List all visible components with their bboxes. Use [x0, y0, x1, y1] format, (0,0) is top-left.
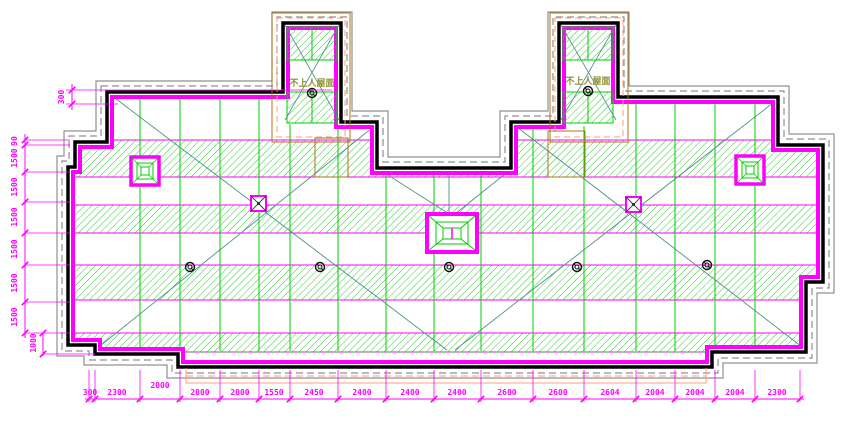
roof-plan-drawing: 不上人屋面 不上人屋面 300	[0, 0, 852, 423]
skylight	[427, 214, 477, 252]
dimension-extension-lines-bottom	[89, 370, 800, 402]
dim-label: 2400	[447, 388, 466, 397]
dim-label: 2000	[150, 381, 169, 390]
dim-label: 1500	[10, 239, 19, 258]
flashing-lines	[186, 368, 706, 383]
dim-label: 2604	[600, 388, 619, 397]
vent-box-icon	[251, 196, 266, 211]
dim-label: 90	[10, 136, 19, 146]
pyramid-vent-icon	[131, 157, 159, 185]
parapet-outlines	[68, 23, 823, 367]
dim-label: 2000	[190, 388, 209, 397]
dim-label: 2600	[497, 388, 516, 397]
dim-label: 1500	[10, 177, 19, 196]
dim-label: 2600	[548, 388, 567, 397]
dim-label: 300	[83, 388, 98, 397]
dim-label: 2004	[725, 388, 744, 397]
dim-label: 2000	[230, 388, 249, 397]
dim-label: 1500	[10, 307, 19, 326]
parapet-outline-black	[68, 23, 823, 367]
dim-label: 2004	[645, 388, 664, 397]
dim-label: 1000	[29, 333, 38, 352]
dim-label: 1500	[10, 148, 19, 167]
dimension-labels-left: 90 1500 1500 1500 1500 1500 1500 1000	[10, 136, 38, 353]
dim-label: 1550	[264, 388, 283, 397]
dimension-chain-bottom: 300 2300 2000 2000 2000 1550 2450 2400 2…	[83, 370, 804, 402]
dim-label: 2004	[685, 388, 704, 397]
dim-label: 1500	[10, 207, 19, 226]
dim-label: 2300	[107, 388, 126, 397]
dim-label: 2450	[304, 388, 323, 397]
dim-label: 300	[57, 90, 66, 105]
roof-note-right: 不上人屋面	[565, 75, 610, 87]
pyramid-vent-icon	[736, 156, 764, 184]
dim-label: 2400	[352, 388, 371, 397]
vent-box-icon	[626, 197, 641, 212]
roof-offset-outlines	[57, 12, 834, 378]
roof-plan-canvas: 不上人屋面 不上人屋面 300	[0, 0, 852, 423]
roof-note-left: 不上人屋面	[289, 77, 334, 89]
parapet-outline-magenta	[73, 28, 818, 362]
dim-label: 2300	[767, 388, 786, 397]
dim-label: 1500	[10, 273, 19, 292]
dim-label: 2400	[400, 388, 419, 397]
